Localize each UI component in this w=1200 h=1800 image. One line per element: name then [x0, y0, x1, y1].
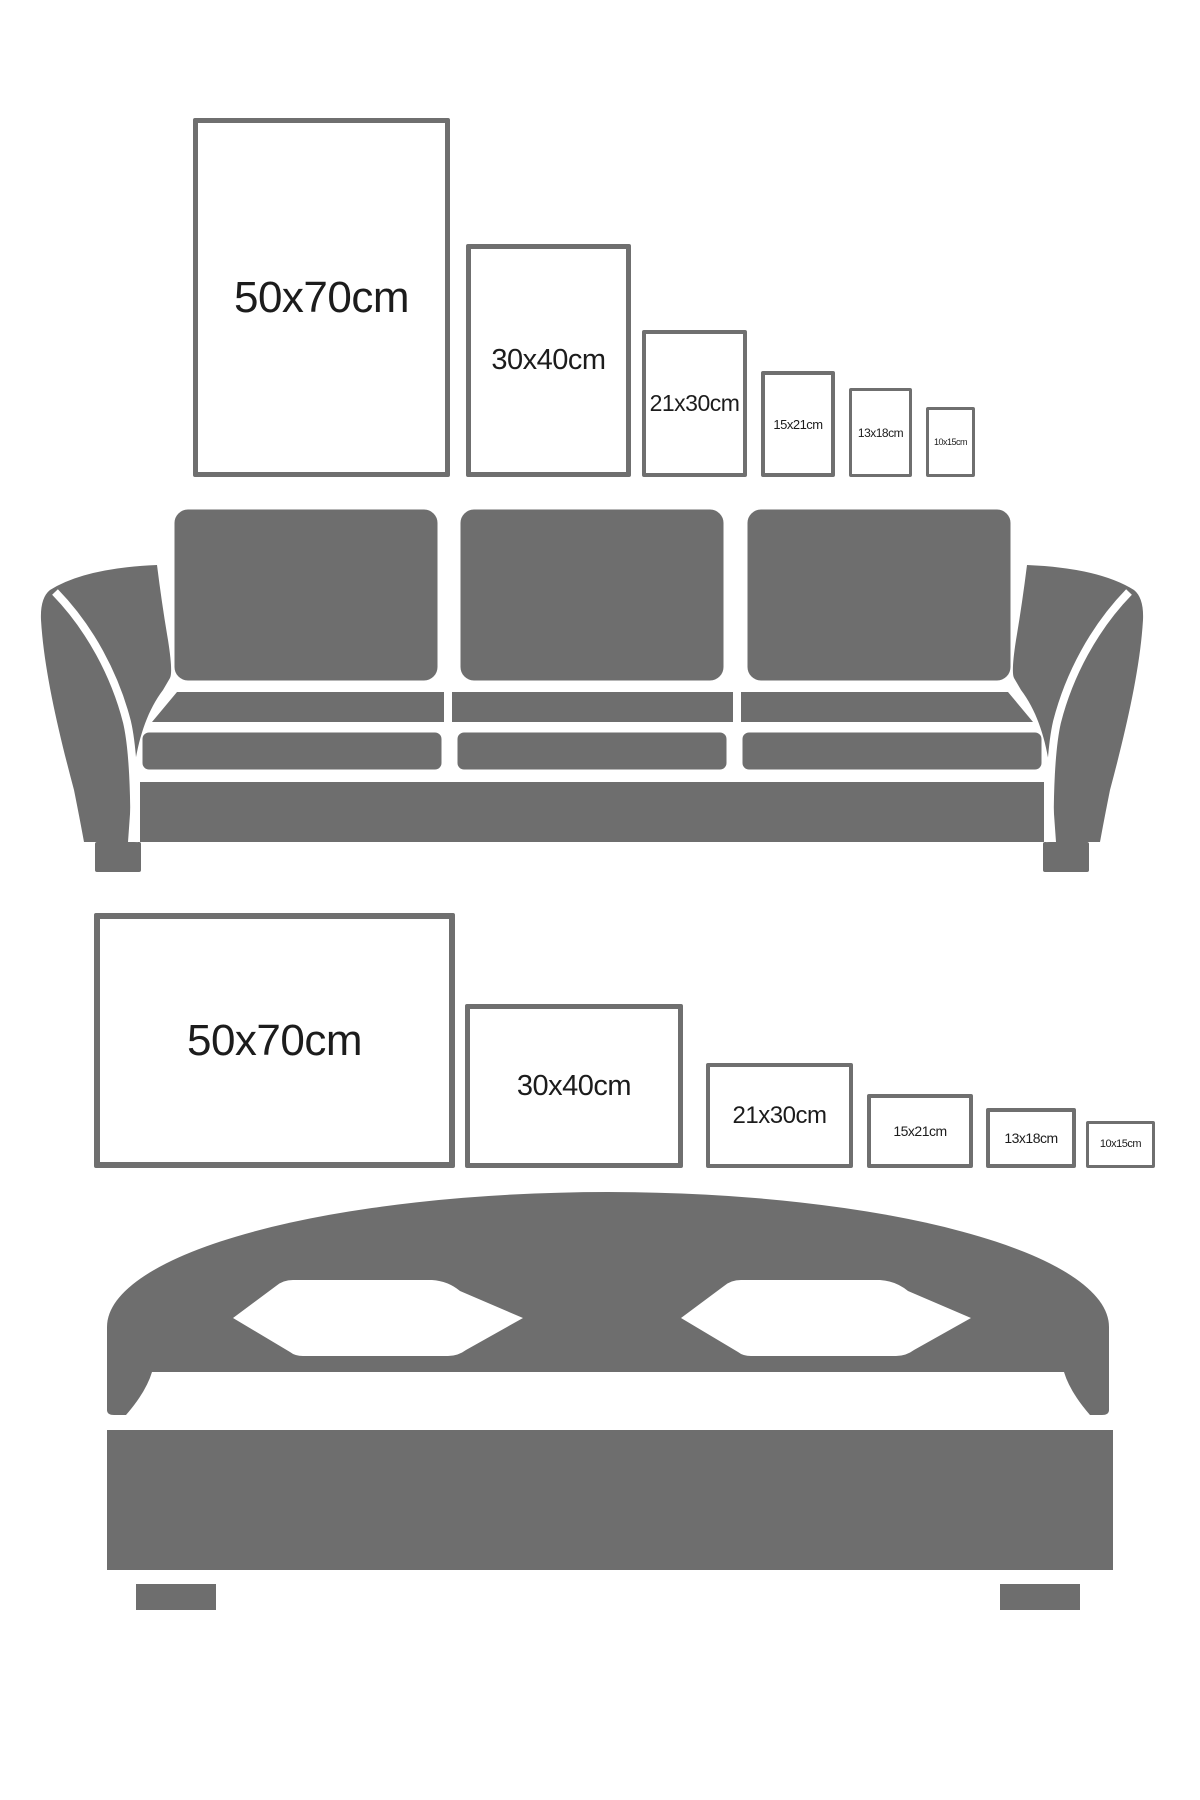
frame-size-label: 10x15cm	[1100, 1139, 1141, 1150]
frame-size-label: 50x70cm	[234, 276, 409, 320]
sofa-armrest-piping-left	[55, 592, 134, 842]
frame-landscape-15x21: 15x21cm	[867, 1094, 973, 1168]
sofa-seat-deck-left	[152, 692, 444, 722]
sofa-seat-cushion-middle	[455, 730, 729, 772]
frame-portrait-21x30: 21x30cm	[642, 330, 747, 477]
sofa-seat-deck-middle	[452, 692, 733, 722]
bed-headboard-post-right	[1064, 1372, 1109, 1415]
frame-landscape-21x30: 21x30cm	[706, 1063, 853, 1168]
frame-size-label: 13x18cm	[858, 427, 903, 439]
sofa-foot-left	[95, 842, 141, 872]
bed-headboard-post-left	[107, 1372, 152, 1415]
frame-landscape-10x15: 10x15cm	[1086, 1121, 1155, 1168]
sofa-armrest-left	[41, 565, 171, 842]
frame-landscape-30x40: 30x40cm	[465, 1004, 683, 1168]
frame-portrait-30x40: 30x40cm	[466, 244, 631, 477]
sofa-armrest-piping-right	[1050, 592, 1129, 842]
frame-portrait-15x21: 15x21cm	[761, 371, 835, 477]
sofa-foot-right	[1043, 842, 1089, 872]
sofa-back-cushion-right	[745, 507, 1013, 683]
frame-portrait-10x15: 10x15cm	[926, 407, 975, 477]
bed-illustration	[100, 1185, 1120, 1615]
sofa-seat-deck-right	[741, 692, 1033, 722]
bed-pillow-right	[681, 1280, 971, 1356]
frame-size-label: 10x15cm	[934, 438, 967, 447]
sofa-illustration	[35, 500, 1165, 880]
frame-portrait-13x18: 13x18cm	[849, 388, 912, 477]
frame-size-label: 21x30cm	[650, 392, 740, 415]
frame-size-label: 30x40cm	[517, 1072, 631, 1101]
frame-size-label: 21x30cm	[733, 1104, 827, 1128]
sofa-back-cushion-left	[172, 507, 440, 683]
frame-size-label: 30x40cm	[491, 346, 605, 375]
bed-foot-left	[136, 1584, 216, 1610]
frame-size-label: 50x70cm	[187, 1019, 362, 1063]
bed-base	[107, 1430, 1113, 1570]
sofa-base	[140, 782, 1044, 842]
sofa-armrest-right	[1013, 565, 1143, 842]
frame-portrait-50x70: 50x70cm	[193, 118, 450, 477]
bed-foot-right	[1000, 1584, 1080, 1610]
size-comparison-canvas: 50x70cm 30x40cm 21x30cm 15x21cm 13x18cm …	[0, 0, 1200, 1800]
frame-landscape-13x18: 13x18cm	[986, 1108, 1076, 1168]
bed-pillow-left	[233, 1280, 523, 1356]
frame-size-label: 15x21cm	[773, 418, 822, 431]
sofa-seat-cushion-right	[740, 730, 1044, 772]
bed-headboard	[107, 1192, 1109, 1372]
sofa-back-cushion-middle	[458, 507, 726, 683]
sofa-seat-cushion-left	[140, 730, 444, 772]
frame-size-label: 13x18cm	[1004, 1131, 1057, 1145]
frame-landscape-50x70: 50x70cm	[94, 913, 455, 1168]
frame-size-label: 15x21cm	[893, 1124, 946, 1138]
